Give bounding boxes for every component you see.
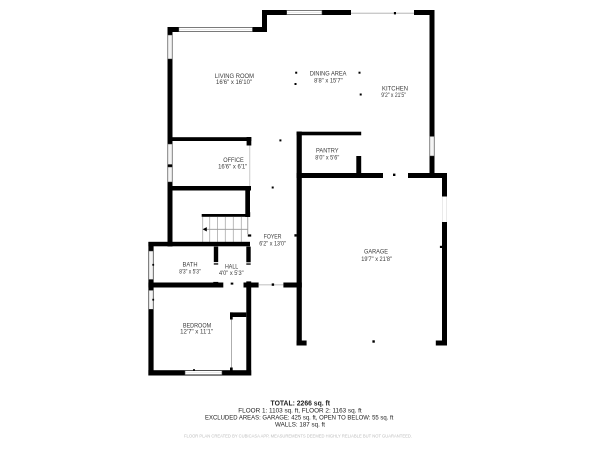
svg-text:19'7" x 21'8": 19'7" x 21'8" [361, 256, 392, 263]
svg-text:FLOOR PLAN CREATED BY CUBICASA: FLOOR PLAN CREATED BY CUBICASA APP, MEAS… [184, 434, 412, 439]
svg-text:FLOOR 1: 1103 sq. ft, FLOOR 2:: FLOOR 1: 1103 sq. ft, FLOOR 2: 1163 sq. … [238, 407, 362, 414]
svg-text:4'0" x 5'3": 4'0" x 5'3" [219, 270, 244, 277]
svg-text:TOTAL: 2266 sq. ft: TOTAL: 2266 sq. ft [271, 400, 331, 407]
svg-text:FOYER: FOYER [264, 234, 282, 241]
svg-text:8'3" x 5'3": 8'3" x 5'3" [179, 269, 201, 276]
svg-text:GARAGE: GARAGE [364, 249, 388, 256]
svg-text:16'6" x 16'10": 16'6" x 16'10" [216, 79, 252, 86]
svg-text:12'7" x 11'1": 12'7" x 11'1" [180, 328, 213, 335]
svg-text:16'6" x 6'1": 16'6" x 6'1" [218, 164, 247, 171]
svg-text:8'0" x 5'6": 8'0" x 5'6" [315, 154, 339, 161]
svg-text:9'2" x 21'5": 9'2" x 21'5" [381, 92, 406, 99]
svg-text:WALLS: 187 sq. ft: WALLS: 187 sq. ft [275, 421, 325, 428]
svg-text:8'8" x 15'7": 8'8" x 15'7" [314, 78, 343, 85]
svg-text:BATH: BATH [183, 262, 198, 269]
svg-text:6'2" x 13'0": 6'2" x 13'0" [259, 241, 286, 248]
